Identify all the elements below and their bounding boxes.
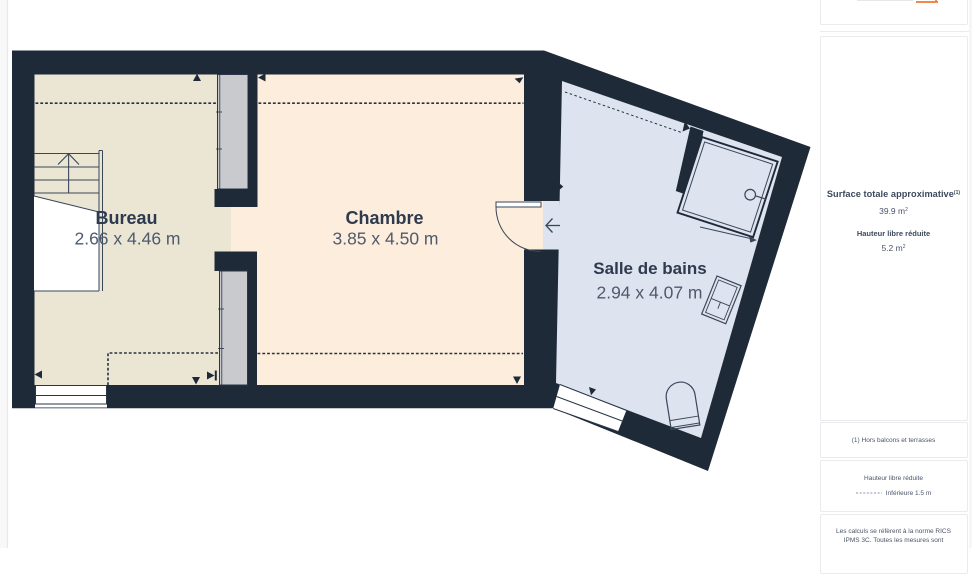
svg-text:Chambre: Chambre — [345, 208, 423, 228]
svg-text:Salle de bains: Salle de bains — [593, 259, 706, 278]
svg-text:Bureau: Bureau — [95, 208, 157, 228]
svg-text:3.85 x 4.50 m: 3.85 x 4.50 m — [332, 229, 438, 249]
svg-text:2.94 x 4.07 m: 2.94 x 4.07 m — [596, 283, 702, 303]
svg-text:2.66 x 4.46 m: 2.66 x 4.46 m — [74, 229, 180, 249]
